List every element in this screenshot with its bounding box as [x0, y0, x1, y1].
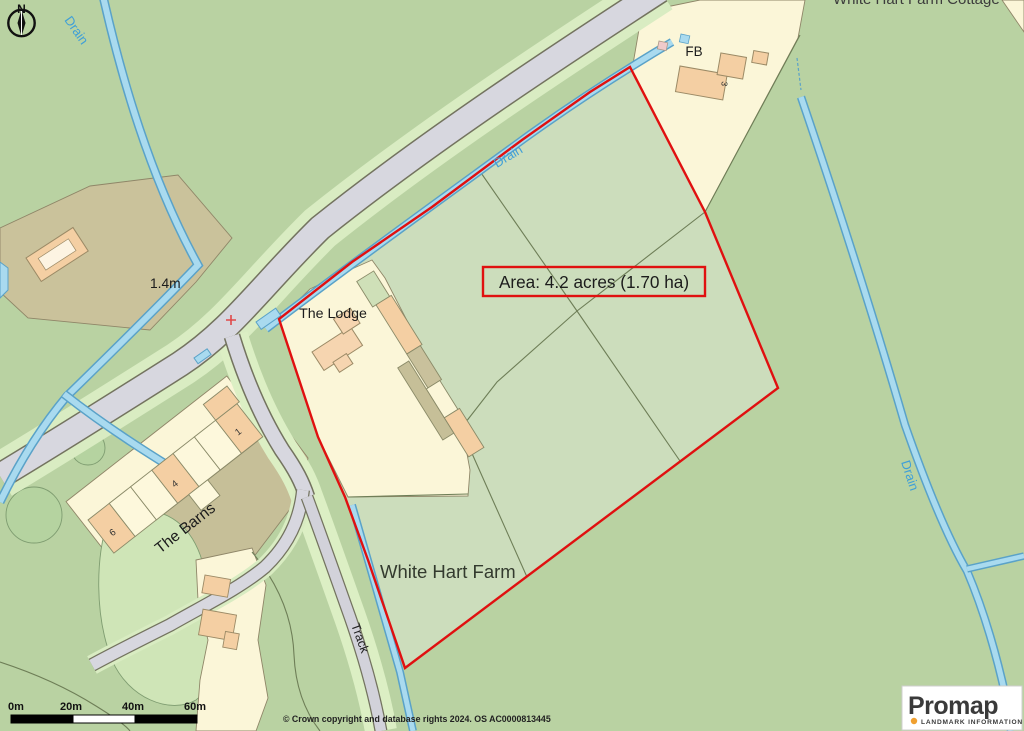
label-cutoff-cottage: White Hart Farm Cottage — [833, 0, 1000, 8]
compass-n: N — [17, 2, 26, 16]
scale-60: 60m — [184, 701, 206, 713]
roadside-structure — [657, 41, 667, 51]
promap-wordmark: Promap — [908, 692, 998, 720]
scale-40: 40m — [122, 701, 144, 713]
map-canvas[interactable]: 6 4 1 Area: 4.2 acres (1.70 ha) White Ha… — [0, 0, 1024, 731]
tree-canopy — [6, 487, 62, 543]
promap-map-view[interactable]: 6 4 1 Area: 4.2 acres (1.70 ha) White Ha… — [0, 0, 1024, 731]
label-fb: FB — [685, 44, 702, 59]
logo-tagline: LANDMARK INFORMATION — [921, 719, 1023, 726]
promap-logo: Promap LANDMARK INFORMATION — [902, 686, 1023, 730]
label-white-hart-farm: White Hart Farm — [380, 561, 516, 582]
area-label-text: Area: 4.2 acres (1.70 ha) — [499, 272, 689, 292]
label-depth: 1.4m — [150, 276, 181, 291]
logo-dot-icon — [911, 718, 917, 724]
label-the-lodge: The Lodge — [299, 306, 367, 322]
copyright-text: © Crown copyright and database rights 20… — [283, 714, 551, 724]
scale-0: 0m — [8, 701, 24, 713]
scale-20: 20m — [60, 701, 82, 713]
area-label: Area: 4.2 acres (1.70 ha) — [483, 267, 705, 296]
roadside-structure — [679, 34, 689, 44]
